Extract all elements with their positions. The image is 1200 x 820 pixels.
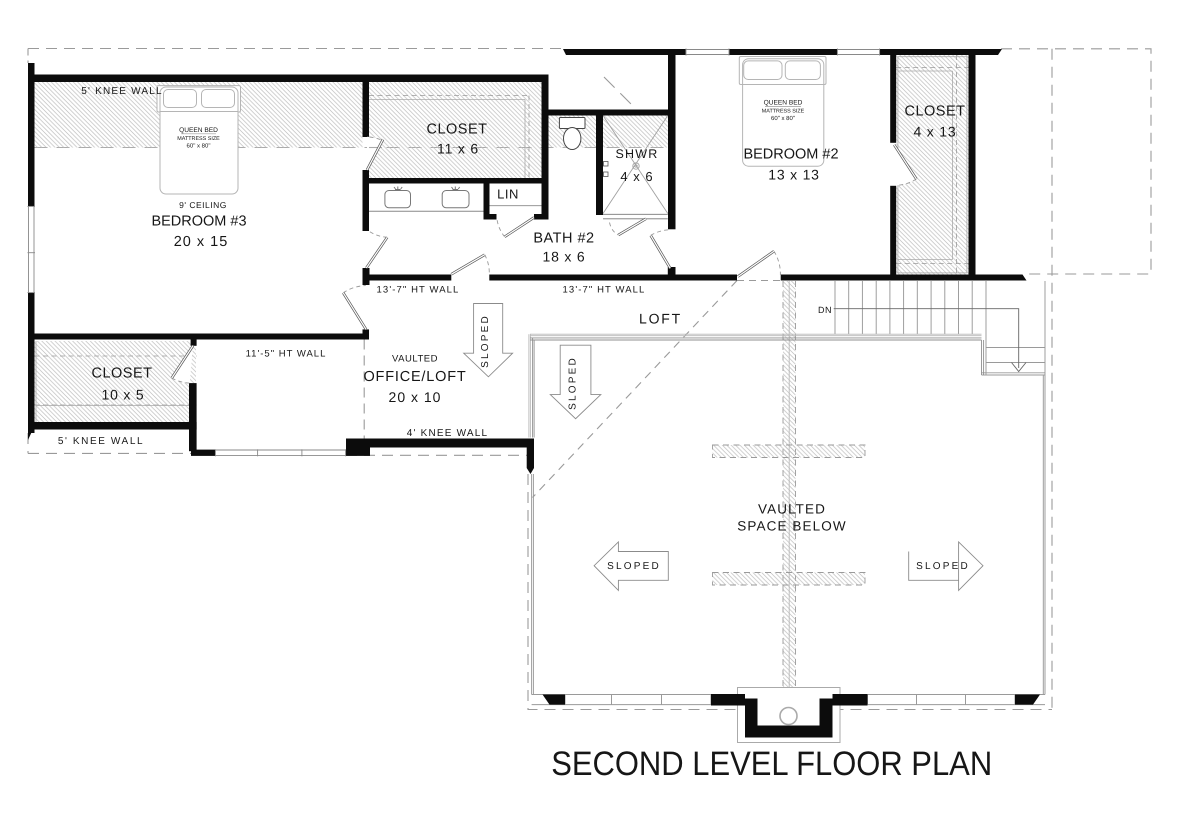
svg-text:SLOPED: SLOPED xyxy=(916,561,970,572)
svg-text:SLOPED: SLOPED xyxy=(480,314,491,368)
svg-text:BATH #2: BATH #2 xyxy=(533,231,594,247)
svg-text:OFFICE/LOFT: OFFICE/LOFT xyxy=(363,369,466,385)
svg-text:LOFT: LOFT xyxy=(639,311,682,327)
svg-text:20 x 10: 20 x 10 xyxy=(389,389,442,405)
svg-text:4' KNEE WALL: 4' KNEE WALL xyxy=(407,428,489,439)
svg-text:VAULTED: VAULTED xyxy=(758,502,826,517)
svg-text:11 x 6: 11 x 6 xyxy=(437,141,479,157)
svg-text:BEDROOM #3: BEDROOM #3 xyxy=(151,214,246,230)
svg-text:BEDROOM #2: BEDROOM #2 xyxy=(743,147,838,163)
svg-text:10 x 5: 10 x 5 xyxy=(102,387,145,403)
svg-text:MATTRESS SIZE: MATTRESS SIZE xyxy=(762,109,805,115)
svg-text:MATTRESS SIZE: MATTRESS SIZE xyxy=(177,136,220,142)
svg-text:LIN: LIN xyxy=(497,187,519,202)
svg-text:CLOSET: CLOSET xyxy=(904,104,965,120)
svg-text:SLOPED: SLOPED xyxy=(568,356,579,410)
svg-text:5' KNEE WALL: 5' KNEE WALL xyxy=(58,436,144,447)
svg-text:SECOND LEVEL FLOOR PLAN: SECOND LEVEL FLOOR PLAN xyxy=(551,745,992,783)
svg-text:11'-5" HT WALL: 11'-5" HT WALL xyxy=(246,349,327,360)
svg-text:CLOSET: CLOSET xyxy=(91,366,152,382)
svg-text:18 x 6: 18 x 6 xyxy=(543,249,586,265)
svg-text:20 x 15: 20 x 15 xyxy=(174,234,229,250)
svg-text:13'-7" HT WALL: 13'-7" HT WALL xyxy=(377,285,460,296)
svg-text:4 x 6: 4 x 6 xyxy=(620,169,653,184)
svg-text:5' KNEE WALL: 5' KNEE WALL xyxy=(81,86,163,97)
svg-text:CLOSET: CLOSET xyxy=(426,122,487,138)
svg-text:4 x 13: 4 x 13 xyxy=(914,124,957,140)
svg-text:SLOPED: SLOPED xyxy=(607,561,661,572)
svg-text:VAULTED: VAULTED xyxy=(392,354,438,365)
svg-text:60" x 80": 60" x 80" xyxy=(771,115,795,122)
svg-text:13'-7" HT WALL: 13'-7" HT WALL xyxy=(563,285,646,296)
svg-text:9' CEILING: 9' CEILING xyxy=(179,200,227,210)
svg-text:QUEEN BED: QUEEN BED xyxy=(179,127,218,134)
svg-text:QUEEN BED: QUEEN BED xyxy=(764,100,803,107)
svg-text:60" x 80": 60" x 80" xyxy=(187,143,211,150)
svg-text:SPACE BELOW: SPACE BELOW xyxy=(737,519,846,534)
svg-text:SHWR: SHWR xyxy=(616,147,659,161)
svg-text:DN: DN xyxy=(818,305,832,315)
svg-text:13 x 13: 13 x 13 xyxy=(768,167,820,183)
